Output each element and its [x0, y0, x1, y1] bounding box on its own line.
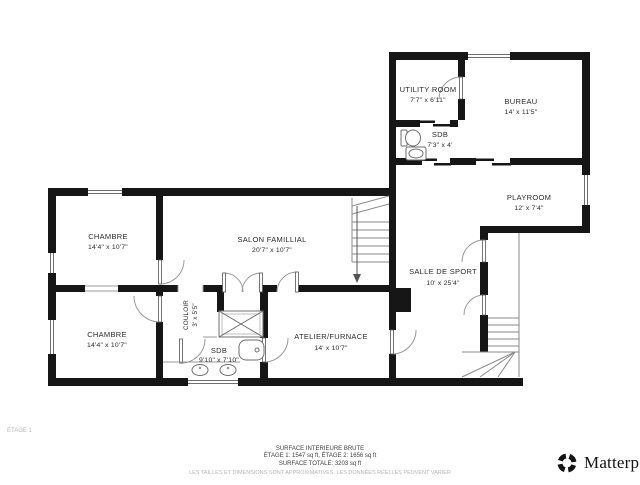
- window: [582, 175, 590, 205]
- room-dims: 12' x 7'4": [514, 205, 544, 212]
- wall-segment: [450, 158, 476, 165]
- window: [48, 253, 56, 273]
- wall-segment: [480, 315, 488, 352]
- wall-segment: [582, 52, 590, 233]
- wall-segment: [480, 233, 488, 240]
- room-dims: 14' x 11'5": [505, 109, 538, 116]
- wall-segment: [156, 322, 163, 378]
- door: [263, 338, 289, 362]
- door: [277, 272, 299, 292]
- wall-segment: [510, 158, 590, 165]
- disclaimer: LES TAILLES ET DIMENSIONS SONT APPROXIMA…: [0, 470, 640, 477]
- room-label-atelier: ATELIER/FURNACE 14' x 10'7": [294, 332, 368, 352]
- door: [462, 240, 486, 262]
- room-label-chambre1: CHAMBRE 14'4" x 10'7": [88, 232, 128, 251]
- shower-icon: [219, 311, 263, 337]
- sink-icon: [406, 147, 426, 160]
- wall-segment: [48, 285, 85, 292]
- room-label-sdb-bas: SDB 9'10" x 7'10": [199, 346, 239, 364]
- room-name: COULOIR: [183, 300, 190, 330]
- floor-label: ÉTAGE 1: [7, 428, 32, 434]
- wall-segment: [156, 196, 163, 260]
- stairs-basement: [462, 233, 519, 377]
- wall-segment: [480, 226, 590, 233]
- wall-segment: [260, 362, 268, 378]
- stairs-salon: [352, 196, 389, 283]
- surface-etages: ÉTAGE 1: 1547 sq ft, ÉTAGE 2: 1656 sq ft: [0, 453, 640, 460]
- sliding-door: [419, 121, 450, 127]
- room-name: SALON FAMILLIAL: [237, 235, 306, 244]
- vanity-sinks-icon: [163, 362, 240, 376]
- room-dims: 7'7" x 6'11": [410, 97, 446, 104]
- room-name: ATELIER/FURNACE: [294, 332, 368, 341]
- matterport-wordmark: Matterport: [584, 453, 640, 473]
- wall-segment: [396, 120, 420, 127]
- room-name: SDB: [432, 130, 448, 139]
- room-dims: 9'10" x 7'10": [199, 357, 239, 364]
- double-door: [223, 273, 263, 292]
- room-label-bureau: BUREAU 14' x 11'5": [504, 97, 537, 116]
- wall-segment: [203, 285, 223, 292]
- window: [48, 320, 56, 354]
- window: [468, 52, 510, 60]
- sliding-door: [475, 159, 511, 166]
- wall-segment: [480, 262, 488, 295]
- room-name: UTILITY ROOM: [400, 85, 457, 94]
- wall-segment: [458, 59, 465, 77]
- door: [391, 330, 417, 354]
- wall-segment: [262, 285, 277, 292]
- bathtub-icon: [239, 340, 264, 360]
- room-label-utility: UTILITY ROOM 7'7" x 6'11": [400, 85, 457, 104]
- room-dims: 14' x 10'7": [314, 345, 348, 352]
- stair-direction-arrow: [353, 274, 361, 283]
- room-name: SALLE DE SPORT: [409, 267, 477, 276]
- room-dims: 3' x 5'5": [192, 303, 199, 327]
- room-name: PLAYROOM: [507, 193, 551, 202]
- room-dims: 14'4" x 10'7": [88, 244, 128, 251]
- room-label-salon: SALON FAMILLIAL 20'7" x 10'7": [237, 235, 306, 254]
- room-dims: 20'7" x 10'7": [252, 247, 292, 254]
- room-label-sport: SALLE DE SPORT 10' x 25'4": [409, 267, 477, 287]
- room-dims: 14'4" x 10'7": [87, 342, 127, 349]
- room-label-sdb-haut: SDB 7'3" x 4': [427, 130, 452, 149]
- door: [159, 260, 185, 284]
- chimney-block: [389, 288, 411, 312]
- room-dims: 7'3" x 4': [427, 142, 452, 149]
- room-label-couloir: COULOIR 3' x 5'5": [183, 300, 199, 330]
- room-label-playroom: PLAYROOM 12' x 7'4": [507, 193, 551, 212]
- room-name: BUREAU: [504, 97, 537, 106]
- surface-totale: SURFACE TOTALE: 3203 sq ft: [0, 461, 640, 468]
- wall-segment: [297, 285, 389, 292]
- room-label-chambre2: CHAMBRE 14'4" x 10'7": [87, 330, 127, 349]
- wall-segment: [156, 292, 163, 296]
- toilet-icon: [401, 130, 421, 146]
- matterport-logo: Matterport: [556, 452, 640, 474]
- room-dims: 10' x 25'4": [426, 280, 460, 287]
- wall-segment: [450, 120, 458, 127]
- wall-segment: [48, 378, 523, 386]
- wall-segment: [163, 285, 178, 292]
- floorplan-page: ÉTAGE 1: [0, 0, 640, 480]
- floorplan-drawing: CHAMBRE 14'4" x 10'7" SALON FAMILLIAL 20…: [0, 0, 640, 480]
- door: [134, 296, 162, 322]
- room-name: CHAMBRE: [87, 330, 127, 339]
- room-name: SDB: [211, 346, 227, 355]
- wall-segment: [118, 285, 163, 292]
- wall-segment: [458, 99, 465, 120]
- wall-segment: [389, 354, 396, 378]
- door: [464, 295, 486, 315]
- window: [188, 378, 238, 386]
- footer: SURFACE INTERIEURE BRUTE ÉTAGE 1: 1547 s…: [0, 446, 640, 477]
- wall-segment: [217, 292, 224, 312]
- window: [88, 188, 122, 196]
- room-name: CHAMBRE: [88, 232, 128, 241]
- matterport-icon: [556, 452, 578, 474]
